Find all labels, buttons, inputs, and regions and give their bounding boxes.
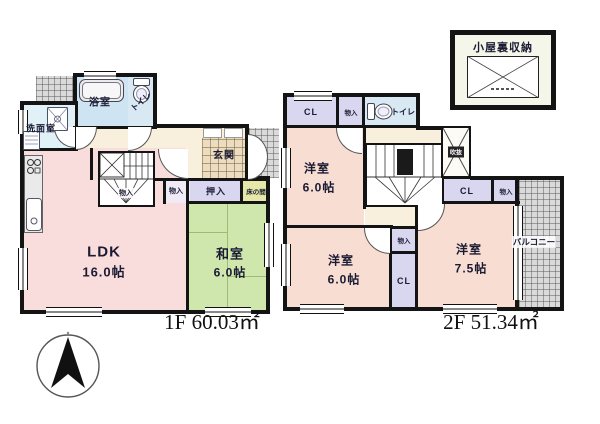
area-1f-label: 1F 60.03㎡ <box>158 306 266 336</box>
hallway-2f <box>365 128 441 144</box>
oshiire-label: 押入 <box>206 185 226 198</box>
hallway-2f-lower <box>365 207 416 226</box>
bathroom-label: 浴室 <box>89 94 111 109</box>
cl-mid-label: CL <box>397 276 411 286</box>
window <box>18 248 28 290</box>
window <box>294 91 332 101</box>
shoe-cabinet <box>203 128 222 138</box>
window <box>281 244 291 286</box>
genkan-label: 玄関 <box>213 147 235 162</box>
stair-storage-label: 物入 <box>118 188 134 198</box>
attic-hatch-unit-icon <box>467 56 539 98</box>
storage-mid-label: 物入 <box>398 235 411 245</box>
washroom-label: 洗面室 <box>26 122 56 135</box>
floor-plan: 浴室 トイレ 洗面室 玄関 物入 物入 押入 床の間 LDK 16.0帖 和室 … <box>0 0 600 424</box>
storage-east-label: 物入 <box>500 186 513 196</box>
stove-icon <box>26 158 41 177</box>
bedroom-sw-size: 6.0帖 <box>328 271 361 288</box>
bedroom-nw-size: 6.0帖 <box>303 179 336 196</box>
attic-storage-label: 小屋裏収納 <box>473 39 533 55</box>
storage-top-label: 物入 <box>345 107 358 117</box>
window <box>513 206 523 300</box>
staircase-2f <box>365 143 444 207</box>
bedroom-nw-label: 洋室 <box>304 160 330 177</box>
tatami-line <box>188 232 228 233</box>
staircase-1f <box>98 151 155 207</box>
window <box>300 304 344 314</box>
void-label: 吹抜 <box>448 147 464 158</box>
bedroom-east-label: 洋室 <box>456 241 482 258</box>
bedroom-east-size: 7.5帖 <box>455 260 488 277</box>
ldk-size-label: 16.0帖 <box>82 262 125 281</box>
tokonoma-label: 床の間 <box>246 186 266 196</box>
compass-icon <box>32 330 104 402</box>
bedroom-sw-label: 洋室 <box>328 252 354 269</box>
shoe-cabinet <box>224 128 243 138</box>
toilet-icon-2f <box>367 100 393 123</box>
window <box>264 223 274 267</box>
sink-icon <box>26 198 42 231</box>
washitsu-label: 和室 <box>216 244 244 263</box>
area-2f-label: 2F 51.34㎡ <box>435 306 547 336</box>
window <box>281 148 291 188</box>
toilet-label-2f: トイレ <box>391 107 415 118</box>
cl-nw-label: CL <box>304 107 318 117</box>
ldk-label: LDK <box>87 244 121 261</box>
balcony-label: バルコニー <box>512 236 556 248</box>
storage-label-1f: 物入 <box>169 186 183 196</box>
window <box>46 307 102 317</box>
porch-northwest <box>36 76 75 103</box>
washitsu-size-label: 6.0帖 <box>214 264 247 281</box>
cl-east-label: CL <box>460 186 474 196</box>
